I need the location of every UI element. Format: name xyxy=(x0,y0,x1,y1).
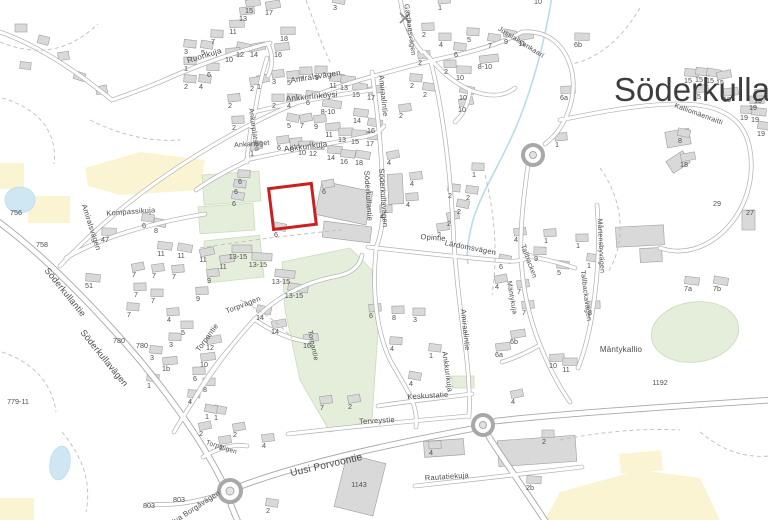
house-number-label: 756 xyxy=(10,208,22,217)
house-number-label: 1b xyxy=(162,364,170,373)
house-number-label: 8-10 xyxy=(321,107,335,116)
house-number-label: 758 xyxy=(36,240,48,249)
house-number-label: 3 xyxy=(272,77,276,86)
house-number-label: 14 xyxy=(271,327,279,336)
house-number-label: 5 xyxy=(201,48,205,57)
house-number-label: 2 xyxy=(447,219,451,228)
house-number-label: 803 xyxy=(173,495,185,504)
house-number-label: 7 xyxy=(127,310,131,319)
building xyxy=(15,24,27,32)
house-number-label: 6 xyxy=(369,311,373,320)
house-number-label: 10 xyxy=(549,361,557,370)
house-number-label: 7 xyxy=(517,287,521,296)
house-number-label: 6b xyxy=(510,337,518,346)
house-number-label: 1 xyxy=(438,3,442,12)
house-number-label: 6 xyxy=(142,221,146,230)
house-number-label: 4 xyxy=(439,40,443,49)
pond xyxy=(47,445,73,482)
house-number-label: 5 xyxy=(467,35,471,44)
house-number-label: 1 xyxy=(576,241,580,250)
sports-field xyxy=(198,203,255,234)
house-number-label: 13-15 xyxy=(249,260,267,269)
house-number-label: 2 xyxy=(418,58,422,67)
house-number-label: 10 xyxy=(534,0,542,6)
house-number-label: 2 xyxy=(219,443,223,452)
house-number-label: 4 xyxy=(495,282,499,291)
house-number-label: 1 xyxy=(184,64,188,73)
house-number-label: 4 xyxy=(390,344,394,353)
house-number-label: 2 xyxy=(233,430,237,439)
house-number-label: 1 xyxy=(257,82,261,91)
house-number-label: 6 xyxy=(306,98,310,107)
house-number-label: 1192 xyxy=(652,378,667,387)
house-number-label: 17 xyxy=(366,139,374,148)
house-number-label: 1 xyxy=(205,412,209,421)
house-number-label: 15 xyxy=(352,90,360,99)
map-canvas[interactable]: RuorikujaAmiralsvägenAmiraalintieAnkkuri… xyxy=(0,0,768,520)
house-number-label: 19 xyxy=(757,129,765,138)
roundabout-island xyxy=(226,487,234,495)
house-number-label: 18 xyxy=(280,34,288,43)
house-number-label: 4 xyxy=(262,441,266,450)
house-number-label: 1 xyxy=(250,149,254,158)
house-number-label: 10 xyxy=(456,73,464,82)
house-number-label: 2 xyxy=(272,101,276,110)
house-number-label: 6 xyxy=(277,143,281,152)
house-number-label: 7 xyxy=(132,270,136,279)
house-number-label: 2 xyxy=(466,193,470,202)
house-number-label: 4 xyxy=(406,200,410,209)
house-number-label: 7 xyxy=(151,296,155,305)
house-number-label: 11 xyxy=(329,81,336,90)
house-number-label: 8-10 xyxy=(478,62,492,71)
house-number-label: 3 xyxy=(333,3,337,12)
house-number-label: 10 xyxy=(225,55,233,64)
house-number-label: 2 xyxy=(399,111,403,120)
house-number-label: 17 xyxy=(367,93,375,102)
house-number-label: 1 xyxy=(429,351,433,360)
house-number-label: 2 xyxy=(250,84,254,93)
house-number-label: 4 xyxy=(199,82,203,91)
house-number-label: 13 xyxy=(239,14,247,23)
house-number-label: 2 xyxy=(228,101,232,110)
street-label: Ankarlaget xyxy=(234,140,270,149)
house-number-label: 15 xyxy=(351,137,359,146)
house-number-label: 18 xyxy=(355,158,363,167)
building xyxy=(20,61,32,69)
house-number-label: 5 xyxy=(287,121,291,130)
house-number-label: 4 xyxy=(409,379,413,388)
street-label: Ankkurikuja xyxy=(440,351,455,393)
house-number-label: 4 xyxy=(511,397,515,406)
building xyxy=(37,35,50,45)
house-number-label: 7 xyxy=(300,74,304,83)
house-number-label: 4 xyxy=(514,235,518,244)
house-number-label: 14 xyxy=(250,50,258,59)
house-number-label: 1 xyxy=(555,140,559,149)
house-number-label: 2 xyxy=(348,402,352,411)
house-number-label: 6 xyxy=(274,230,278,239)
house-number-label: 8 xyxy=(588,308,592,317)
house-number-label: 4 xyxy=(410,179,414,188)
house-number-label: 9 xyxy=(504,37,508,46)
house-number-label: 6 xyxy=(499,262,503,271)
house-number-label: 7 xyxy=(320,403,324,412)
house-number-label: 11 xyxy=(229,27,236,36)
house-number-label: 29 xyxy=(713,199,721,208)
house-number-label: 3 xyxy=(150,353,154,362)
house-number-label: 1 xyxy=(544,236,548,245)
house-number-label: 5 xyxy=(287,78,291,87)
house-number-label: 7 xyxy=(211,37,215,46)
house-number-label: 6 xyxy=(322,187,326,196)
house-number-label: 2 xyxy=(423,90,427,99)
house-number-label: 4 xyxy=(387,158,391,167)
house-number-label: 6 xyxy=(238,177,242,186)
house-number-label: 51 xyxy=(85,281,93,290)
house-number-label: 11 xyxy=(518,39,525,48)
house-number-label: 6b xyxy=(574,40,582,49)
house-number-label: 10 xyxy=(200,360,208,369)
house-number-label: 2 xyxy=(444,67,448,76)
house-number-label: 2 xyxy=(410,81,414,90)
house-number-label: 14 xyxy=(327,153,335,162)
street-label: Terveystie xyxy=(359,415,395,426)
house-number-label: 16 xyxy=(274,50,282,59)
house-number-label: 6a xyxy=(495,350,503,359)
house-number-label: 14 xyxy=(353,116,361,125)
house-number-label: 4 xyxy=(429,448,433,457)
house-number-label: 8 xyxy=(392,313,396,322)
house-number-label: 7 xyxy=(522,308,526,317)
house-number-label: 16 xyxy=(340,157,348,166)
house-number-label: 780 xyxy=(113,336,125,345)
field-area xyxy=(0,498,34,520)
house-number-label: 7 xyxy=(300,121,304,130)
house-number-label: 13-15 xyxy=(285,291,303,300)
house-number-label: 3 xyxy=(169,340,173,349)
house-number-label: 10 xyxy=(298,148,306,157)
house-number-label: 3 xyxy=(413,315,417,324)
house-number-label: 16 xyxy=(303,341,311,350)
house-number-label: 6 xyxy=(207,70,211,79)
house-number-label: 11 xyxy=(562,365,569,374)
house-number-label: 17 xyxy=(265,8,273,17)
house-number-label: 2 xyxy=(457,207,461,216)
house-number-label: 16 xyxy=(367,126,375,135)
house-number-label: 27 xyxy=(746,208,754,217)
house-number-label: 11 xyxy=(157,249,164,258)
house-number-label: 8 xyxy=(203,385,207,394)
house-number-label: 5 xyxy=(557,268,561,277)
street-label: Gästhagsvägen xyxy=(402,4,416,56)
street-label: Opintie xyxy=(420,232,446,243)
house-number-label: 11 xyxy=(199,255,206,264)
house-number-label: 7a xyxy=(684,284,692,293)
house-number-label: 7 xyxy=(488,41,492,50)
house-number-label: 13 xyxy=(340,83,348,92)
house-number-label: 2 xyxy=(448,191,452,200)
field-area xyxy=(545,470,720,520)
house-number-label: 2 xyxy=(184,82,188,91)
house-number-label: 8 xyxy=(154,226,158,235)
house-number-label: 8 xyxy=(290,145,294,154)
house-number-label: 10 xyxy=(459,93,467,102)
house-number-label: 12 xyxy=(309,149,317,158)
house-number-label: 11 xyxy=(177,251,184,260)
house-number-label: 12 xyxy=(206,343,214,352)
place-name-label: Söderkulla xyxy=(614,71,768,108)
house-number-label: 5 xyxy=(181,328,185,337)
house-number-label: 780 xyxy=(136,341,148,350)
house-number-label: 11 xyxy=(325,130,332,139)
roundabout-island xyxy=(480,422,487,429)
house-number-label: 1 xyxy=(587,261,591,270)
house-number-label: 6a xyxy=(560,93,568,102)
house-number-label: 19 xyxy=(740,113,748,122)
building xyxy=(616,225,665,247)
house-number-label: 6 xyxy=(232,199,236,208)
house-number-label: 6 xyxy=(454,50,458,59)
house-number-label: 803 xyxy=(143,501,155,510)
house-number-label: 9 xyxy=(534,254,538,263)
house-number-label: 4 xyxy=(287,101,291,110)
house-number-label: 9 xyxy=(207,276,211,285)
house-number-label: 19 xyxy=(751,115,759,124)
house-number-label: 6 xyxy=(193,374,197,383)
house-number-label: 12 xyxy=(236,50,244,59)
house-number-label: 9 xyxy=(315,73,319,82)
house-number-label: 10 xyxy=(458,105,466,114)
house-number-label: 9 xyxy=(196,294,200,303)
street-label: Mäntykallio xyxy=(600,345,643,354)
house-number-label: 7 xyxy=(152,271,156,280)
house-number-label: 13-15 xyxy=(229,252,247,261)
house-number-label: 2 xyxy=(232,123,236,132)
street-label: Mäntykuja xyxy=(505,281,518,315)
building xyxy=(387,174,404,205)
house-number-label: 7b xyxy=(713,284,721,293)
house-number-label: 1 xyxy=(472,170,476,179)
roundabout-island xyxy=(530,152,537,159)
house-number-label: 2b xyxy=(526,483,534,492)
house-number-label: 1 xyxy=(214,413,218,422)
house-number-label: 2 xyxy=(542,437,546,446)
house-number-label: 2 xyxy=(266,506,270,515)
house-number-label: 18 xyxy=(680,160,688,169)
house-number-label: 47 xyxy=(101,235,109,244)
house-number-label: 3 xyxy=(184,47,188,56)
house-number-label: 2 xyxy=(422,30,426,39)
park-area xyxy=(647,296,742,368)
house-number-label: 6 xyxy=(234,187,238,196)
house-number-label: 2 xyxy=(437,230,441,239)
house-number-label: 9 xyxy=(314,122,318,131)
field-area xyxy=(619,450,663,474)
map-viewport[interactable]: RuorikujaAmiralsvägenAmiraalintieAnkkuri… xyxy=(0,0,768,520)
house-number-label: 8 xyxy=(678,136,682,145)
house-number-label: 779-11 xyxy=(7,397,29,406)
house-number-label: 4 xyxy=(167,315,171,324)
house-number-label: 1 xyxy=(147,381,151,390)
house-number-label: 13 xyxy=(338,135,346,144)
house-number-label: 1143 xyxy=(351,480,366,489)
house-number-label: 4 xyxy=(188,397,192,406)
field-area xyxy=(0,163,24,189)
house-number-label: 14 xyxy=(256,313,264,322)
house-number-label: 7 xyxy=(134,290,138,299)
house-number-label: 7 xyxy=(172,272,176,281)
house-number-label: 4 xyxy=(380,212,384,221)
house-number-label: 11 xyxy=(219,262,226,271)
house-number-label: 13-15 xyxy=(272,277,290,286)
house-number-label: 2 xyxy=(199,429,203,438)
